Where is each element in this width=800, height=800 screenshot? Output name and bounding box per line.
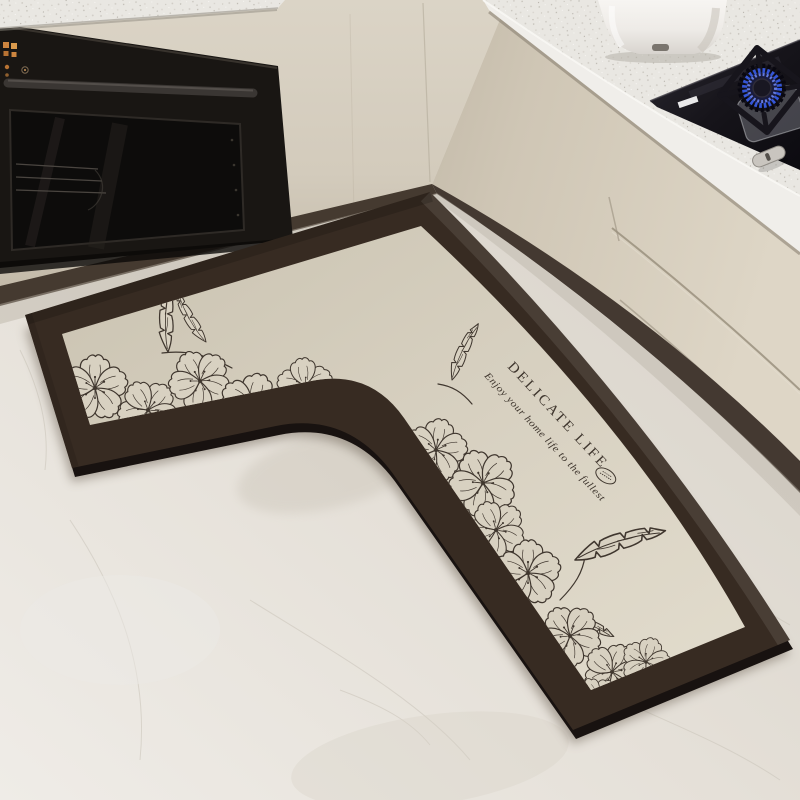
kettle-base-slot — [652, 44, 669, 51]
kitchen-scene: DELICATE LIFE Enjoy your home life to th… — [0, 0, 800, 800]
kitchen-floor-mat-photo: DELICATE LIFE Enjoy your home life to th… — [0, 0, 800, 800]
kettle — [598, 0, 727, 63]
gas-burner-flame — [739, 65, 785, 111]
oven-window — [10, 110, 244, 250]
